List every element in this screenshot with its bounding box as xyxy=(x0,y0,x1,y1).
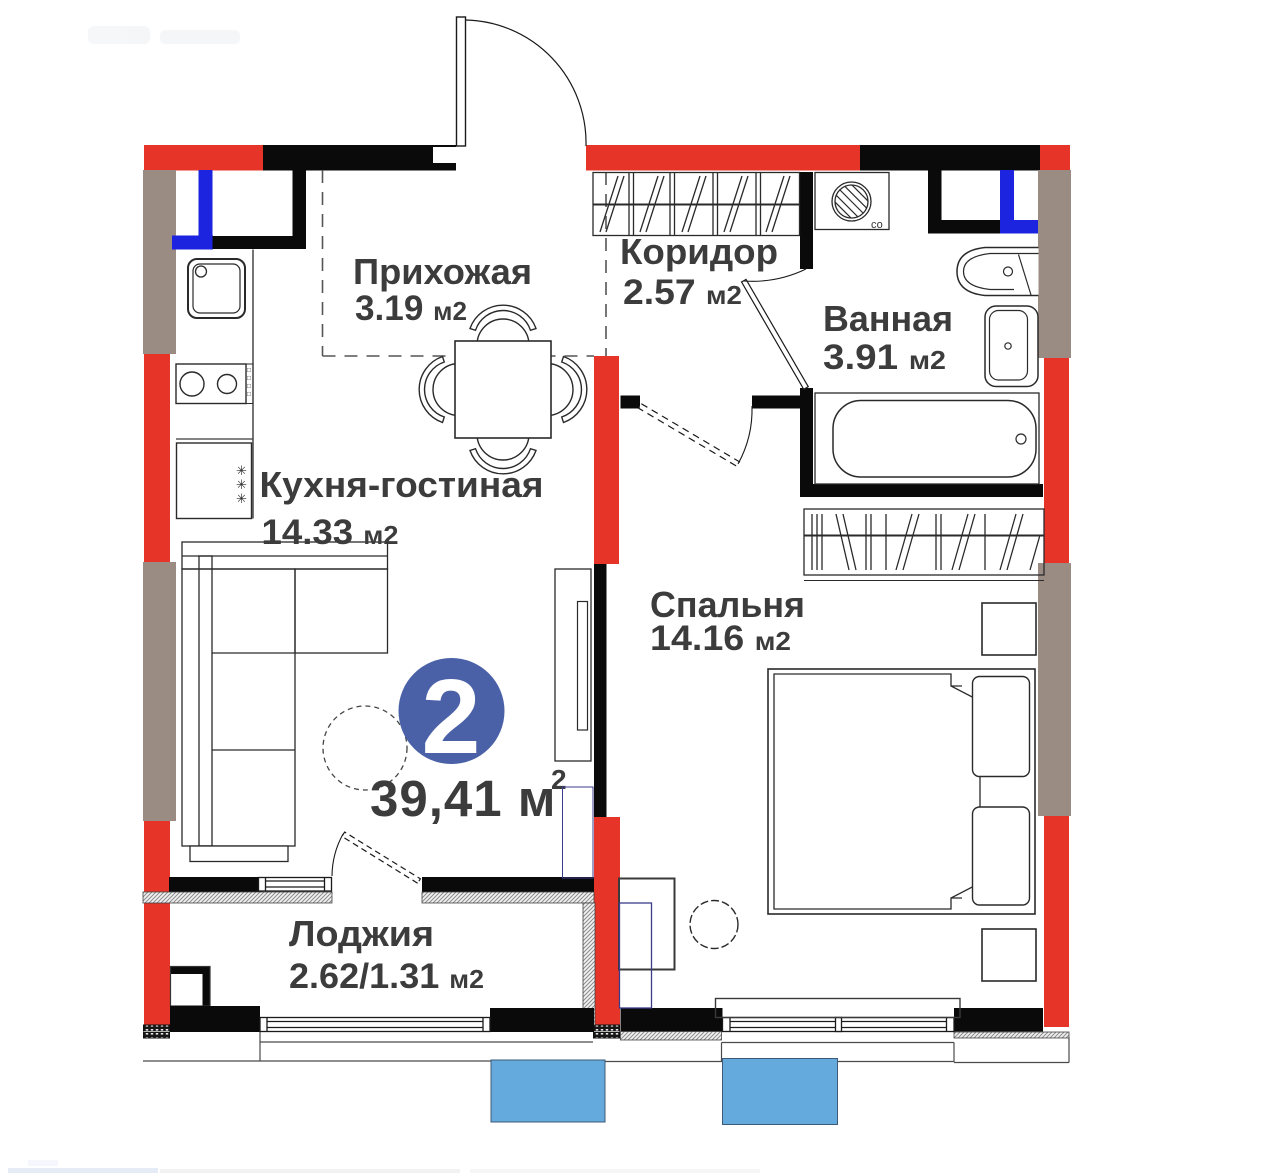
svg-text:39,41 м: 39,41 м xyxy=(370,770,557,827)
svg-text:□: □ xyxy=(247,391,251,398)
svg-text:□: □ xyxy=(247,367,251,374)
svg-text:□: □ xyxy=(247,375,251,382)
svg-text:Лоджия: Лоджия xyxy=(289,913,434,954)
svg-text:✳: ✳ xyxy=(236,491,247,506)
svg-text:Ванная: Ванная xyxy=(823,298,953,339)
svg-text:со: со xyxy=(871,219,883,231)
svg-text:Коридор: Коридор xyxy=(620,231,778,272)
svg-text:Прихожая: Прихожая xyxy=(353,251,532,292)
svg-text:2: 2 xyxy=(422,658,481,776)
svg-text:Кухня-гостиная: Кухня-гостиная xyxy=(260,464,544,505)
svg-text:✳: ✳ xyxy=(236,463,247,478)
svg-text:2: 2 xyxy=(551,764,567,795)
svg-text:✳: ✳ xyxy=(236,477,247,492)
svg-text:□: □ xyxy=(247,383,251,390)
